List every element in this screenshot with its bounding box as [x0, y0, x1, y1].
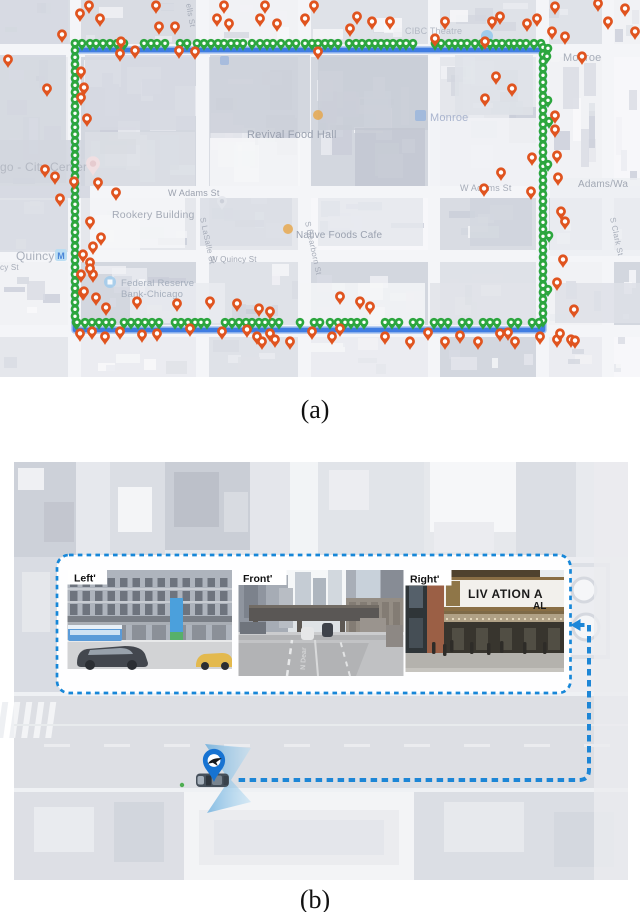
svg-text:AL: AL: [533, 601, 546, 612]
svg-text:M: M: [57, 251, 65, 261]
svg-text:Monroe: Monroe: [430, 112, 469, 124]
svg-text:Bank-Chicago: Bank-Chicago: [121, 289, 183, 300]
svg-text:Revival Food Hall: Revival Food Hall: [247, 129, 337, 141]
svg-text:Rookery Building: Rookery Building: [112, 209, 195, 221]
svg-text:Front': Front': [243, 573, 272, 585]
svg-text:LIV ATION A: LIV ATION A: [468, 587, 543, 601]
svg-text:N Dear: N Dear: [300, 647, 308, 670]
svg-text:Left': Left': [74, 573, 96, 585]
svg-text:Federal Reserve: Federal Reserve: [121, 278, 194, 289]
svg-text:cy St: cy St: [0, 263, 19, 272]
svg-text:Quincy: Quincy: [16, 249, 55, 263]
svg-text:W Adams St: W Adams St: [168, 188, 220, 198]
svg-text:Adams/Wa: Adams/Wa: [578, 179, 628, 190]
svg-text:Right': Right': [410, 574, 439, 586]
